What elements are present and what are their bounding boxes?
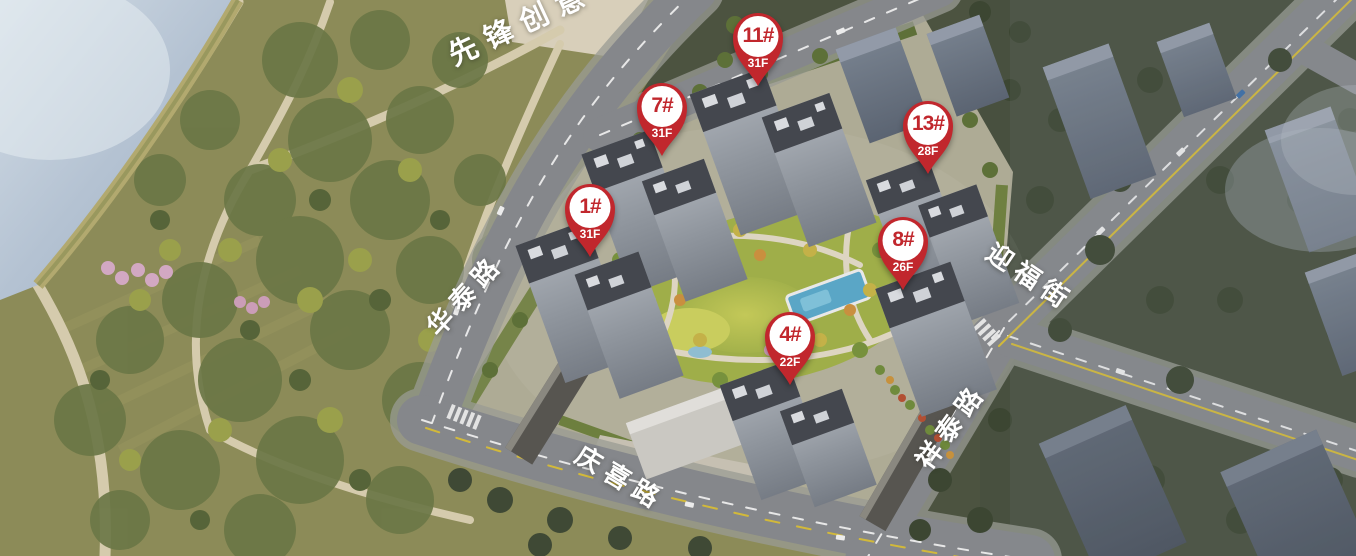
pin-floor-count: 26F <box>875 260 931 274</box>
pin-floor-count: 31F <box>634 126 690 140</box>
building-pin-7[interactable]: 7# 31F <box>634 80 690 158</box>
aerial-site-plan: 华泰路庆喜路祥泰路迎福街先锋创意 1# 31F 4# 22F 7# 31F 8#… <box>0 0 1356 556</box>
pin-building-number: 8# <box>875 225 931 254</box>
pin-building-number: 13# <box>900 109 956 138</box>
building-pin-13[interactable]: 13# 28F <box>900 98 956 176</box>
pin-building-number: 4# <box>762 320 818 349</box>
building-pin-11[interactable]: 11# 31F <box>730 10 786 88</box>
pin-floor-count: 28F <box>900 144 956 158</box>
pin-building-number: 1# <box>562 192 618 221</box>
pin-floor-count: 22F <box>762 355 818 369</box>
building-pin-4[interactable]: 4# 22F <box>762 309 818 387</box>
building-pin-8[interactable]: 8# 26F <box>875 214 931 292</box>
pin-floor-count: 31F <box>730 56 786 70</box>
haze <box>1010 0 1356 556</box>
pin-building-number: 11# <box>730 21 786 50</box>
pin-building-number: 7# <box>634 91 690 120</box>
building-pin-1[interactable]: 1# 31F <box>562 181 618 259</box>
pin-floor-count: 31F <box>562 227 618 241</box>
